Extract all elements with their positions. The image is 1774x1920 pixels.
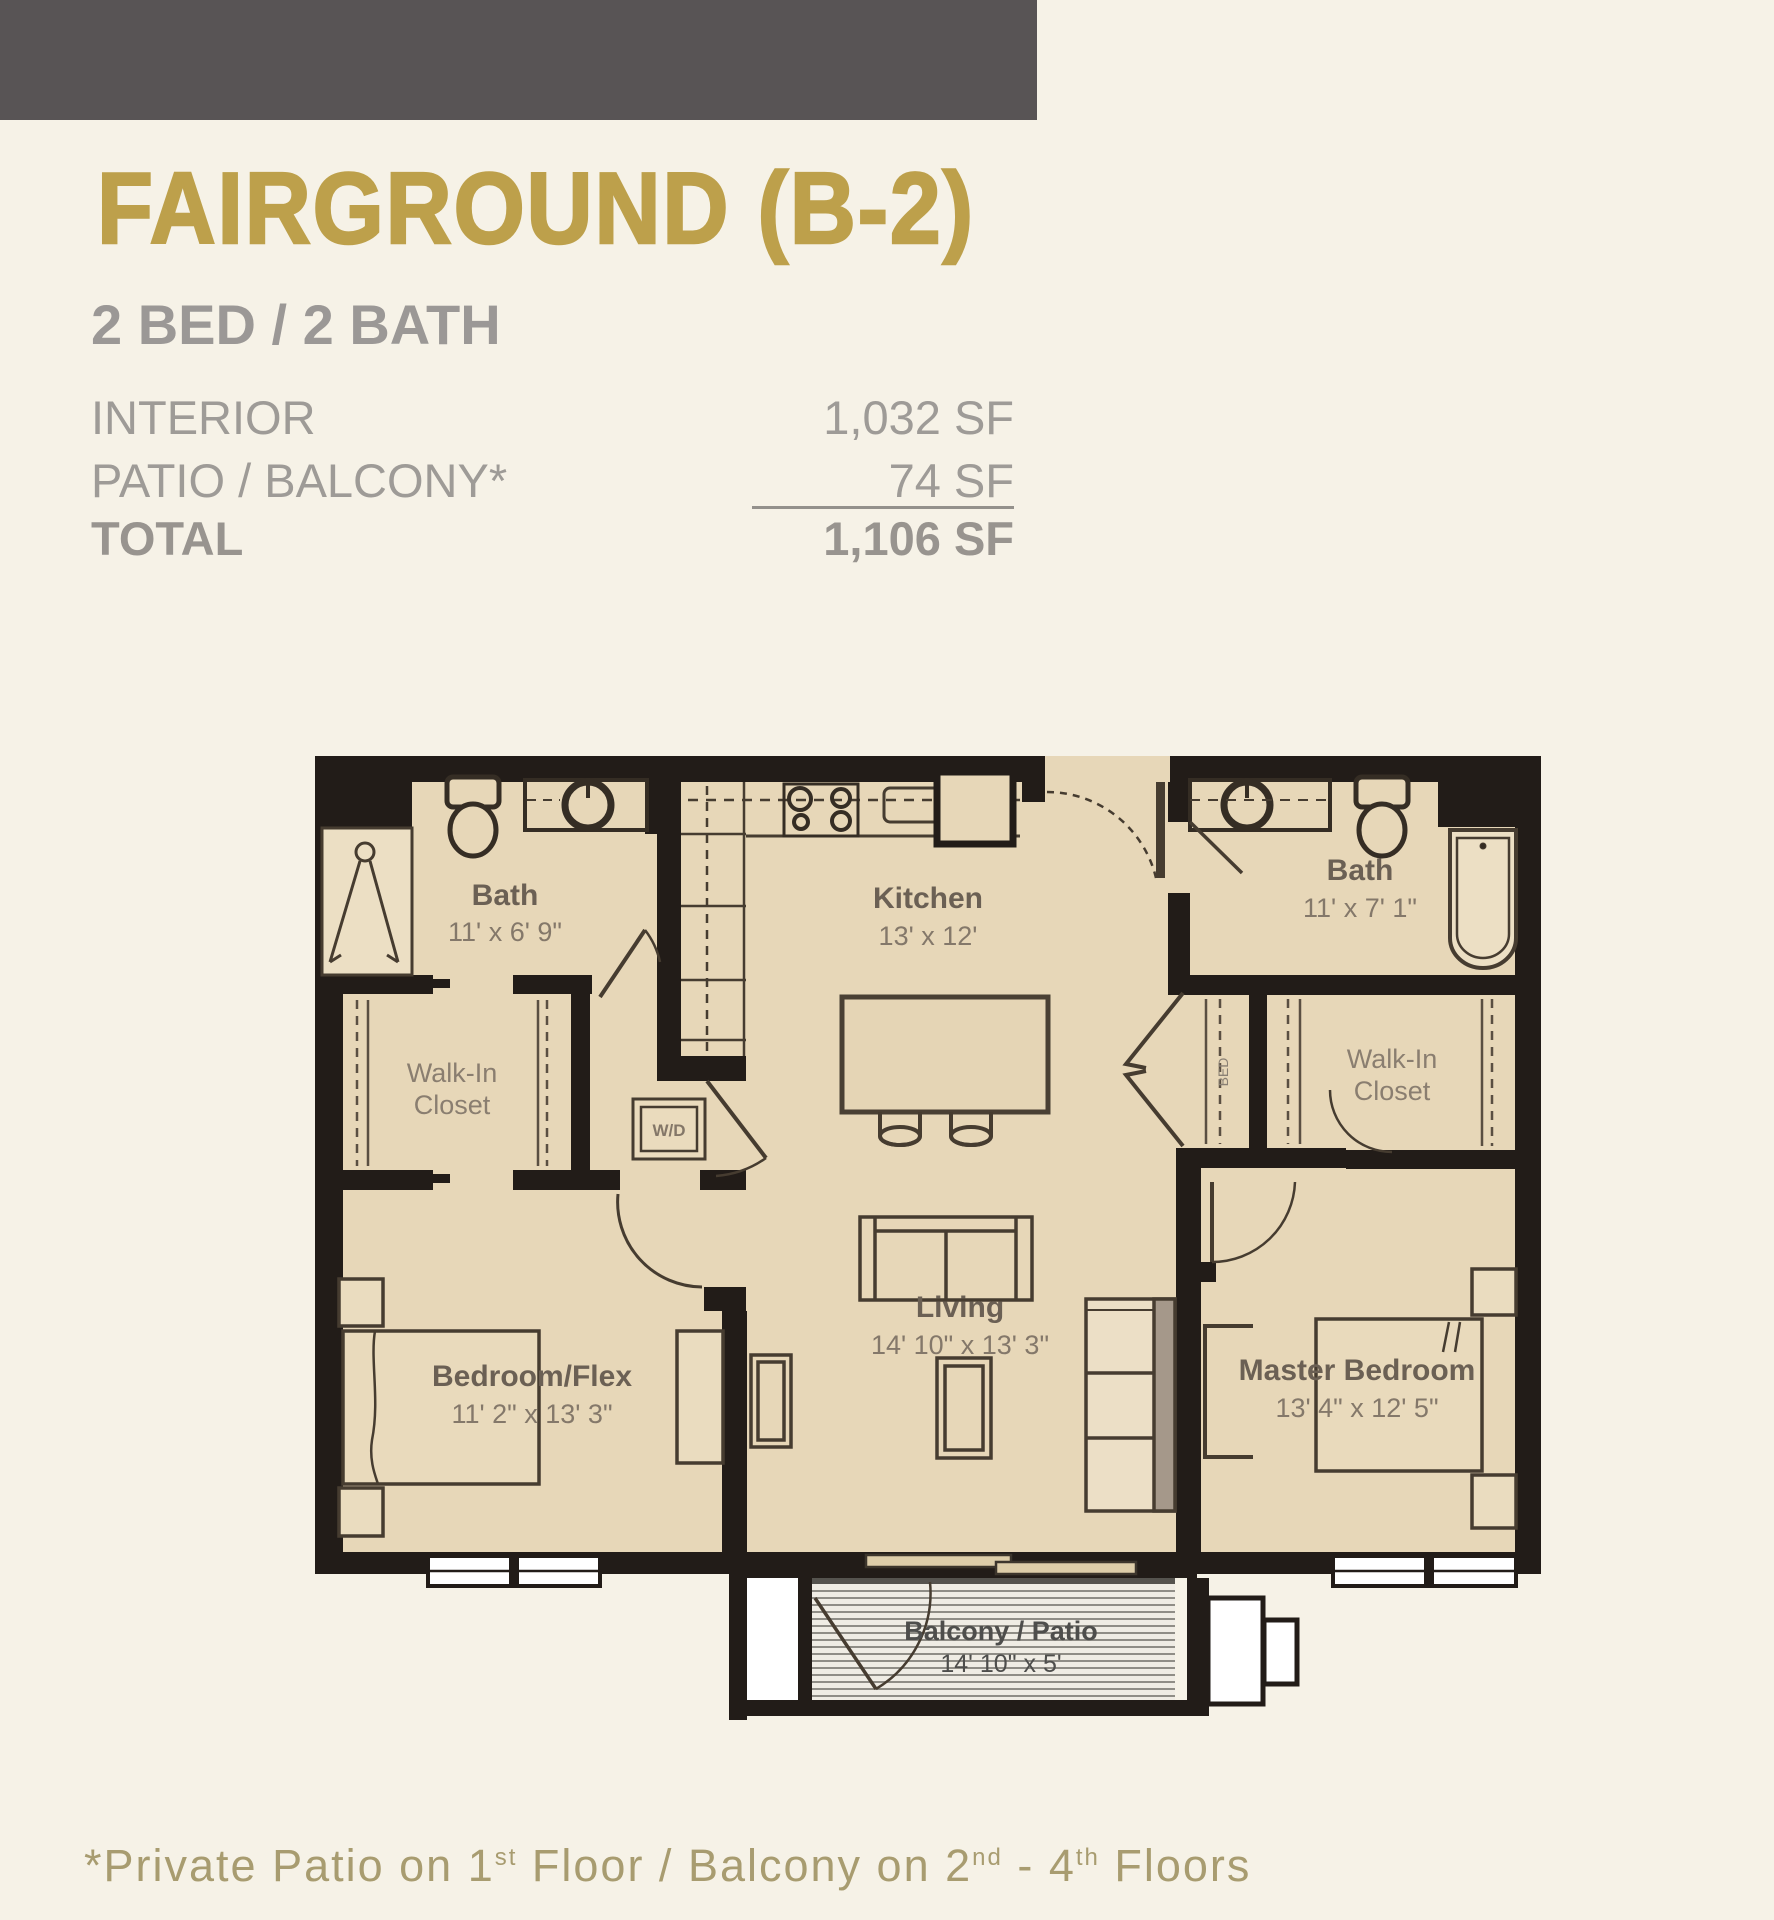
svg-text:11' 2" x 13' 3": 11' 2" x 13' 3": [451, 1399, 612, 1429]
svg-text:Living: Living: [916, 1291, 1004, 1324]
svg-text:Bedroom/Flex: Bedroom/Flex: [432, 1360, 632, 1393]
svg-text:Bath: Bath: [1327, 854, 1394, 887]
svg-text:14' 10" x 13' 3": 14' 10" x 13' 3": [871, 1330, 1049, 1360]
svg-text:13' 4" x 12' 5": 13' 4" x 12' 5": [1275, 1393, 1438, 1423]
svg-text:Closet: Closet: [414, 1090, 491, 1120]
svg-text:BED: BED: [1215, 1058, 1231, 1087]
svg-text:11' x 7' 1": 11' x 7' 1": [1303, 893, 1417, 923]
svg-text:13' x 12': 13' x 12': [879, 921, 978, 951]
svg-text:Walk-In: Walk-In: [407, 1058, 498, 1088]
svg-text:Balcony / Patio: Balcony / Patio: [904, 1616, 1098, 1646]
svg-text:W/D: W/D: [652, 1121, 685, 1140]
svg-text:11' x 6' 9": 11' x 6' 9": [448, 917, 562, 947]
svg-text:Walk-In: Walk-In: [1347, 1044, 1438, 1074]
svg-text:Closet: Closet: [1354, 1076, 1431, 1106]
svg-text:Kitchen: Kitchen: [873, 882, 983, 915]
svg-text:14' 10" x 5': 14' 10" x 5': [940, 1650, 1061, 1678]
svg-text:Master Bedroom: Master Bedroom: [1239, 1354, 1476, 1387]
svg-text:Bath: Bath: [472, 879, 539, 912]
